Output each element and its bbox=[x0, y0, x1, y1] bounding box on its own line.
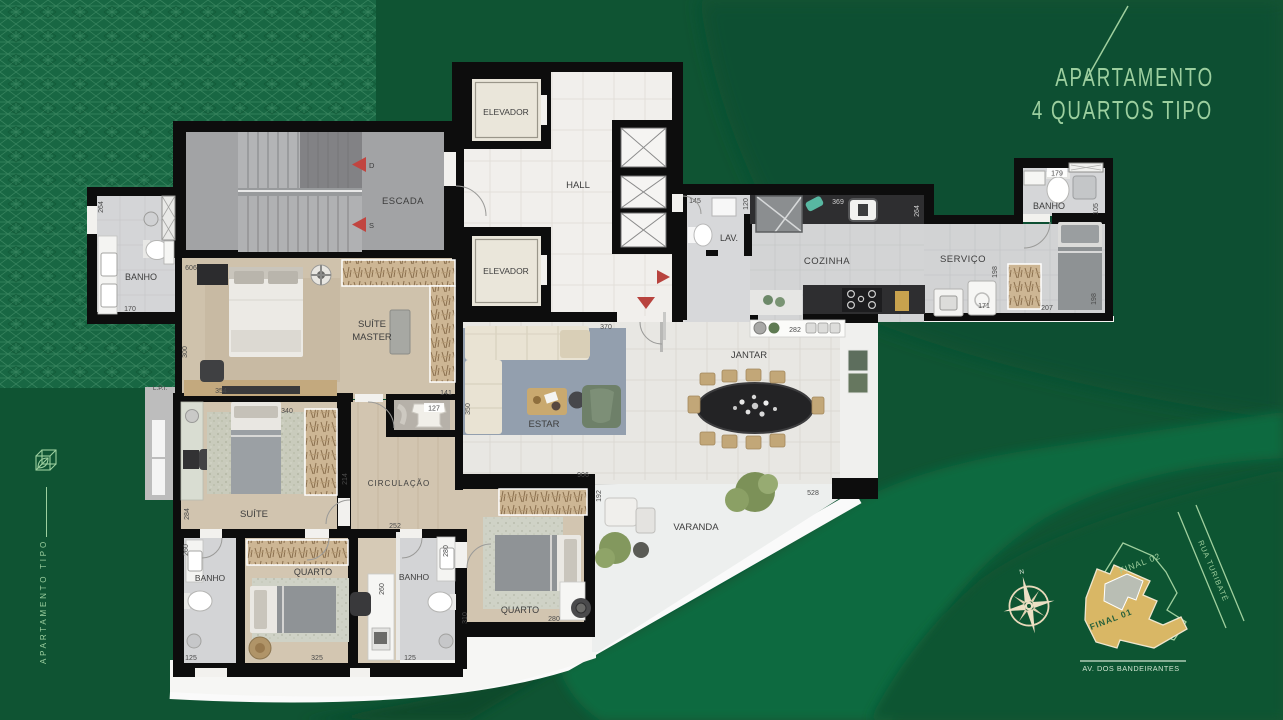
svg-text:105: 105 bbox=[1093, 203, 1100, 215]
svg-text:APARTAMENTO: APARTAMENTO bbox=[1055, 62, 1214, 92]
svg-text:280: 280 bbox=[548, 616, 560, 623]
svg-text:300: 300 bbox=[182, 346, 189, 358]
svg-text:BANHO: BANHO bbox=[125, 272, 157, 282]
svg-text:COZINHA: COZINHA bbox=[804, 256, 850, 267]
svg-text:528: 528 bbox=[807, 490, 819, 497]
svg-text:VARANDA: VARANDA bbox=[673, 522, 719, 533]
svg-text:LAV.: LAV. bbox=[720, 233, 738, 243]
svg-text:ELEVADOR: ELEVADOR bbox=[483, 107, 529, 117]
svg-text:D: D bbox=[369, 161, 375, 170]
svg-text:284: 284 bbox=[184, 508, 191, 520]
svg-text:370: 370 bbox=[600, 324, 612, 331]
svg-text:179: 179 bbox=[1051, 171, 1063, 178]
svg-text:198: 198 bbox=[992, 266, 999, 278]
svg-text:4 QUARTOS TIPO: 4 QUARTOS TIPO bbox=[1032, 95, 1213, 125]
svg-text:145: 145 bbox=[689, 198, 701, 205]
svg-text:APARTAMENTO TIPO: APARTAMENTO TIPO bbox=[39, 539, 48, 664]
svg-text:AV. DOS BANDEIRANTES: AV. DOS BANDEIRANTES bbox=[1082, 664, 1179, 673]
svg-text:ESTAR: ESTAR bbox=[529, 419, 560, 430]
svg-text:JANTAR: JANTAR bbox=[731, 350, 767, 361]
svg-text:BANHO: BANHO bbox=[399, 572, 430, 582]
svg-text:350: 350 bbox=[465, 403, 472, 415]
svg-text:369: 369 bbox=[832, 199, 844, 206]
svg-text:171: 171 bbox=[978, 303, 990, 310]
svg-text:282: 282 bbox=[789, 327, 801, 334]
svg-text:354: 354 bbox=[215, 388, 227, 395]
svg-text:214: 214 bbox=[342, 473, 349, 485]
svg-text:CIRCULAÇÃO: CIRCULAÇÃO bbox=[368, 479, 430, 488]
svg-text:SUÍTE: SUÍTE bbox=[240, 509, 268, 520]
svg-text:HALL: HALL bbox=[566, 180, 590, 191]
svg-text:606: 606 bbox=[185, 265, 197, 272]
svg-text:ELEVADOR: ELEVADOR bbox=[483, 266, 529, 276]
svg-text:QUARTO: QUARTO bbox=[294, 567, 332, 577]
svg-text:141: 141 bbox=[440, 390, 452, 397]
svg-text:BANHO: BANHO bbox=[195, 573, 226, 583]
svg-text:906: 906 bbox=[577, 472, 589, 479]
svg-text:198: 198 bbox=[1091, 293, 1098, 305]
svg-text:207: 207 bbox=[1041, 305, 1053, 312]
svg-text:SERVIÇO: SERVIÇO bbox=[940, 254, 986, 265]
svg-text:SUÍTE: SUÍTE bbox=[358, 319, 386, 330]
svg-text:MASTER: MASTER bbox=[352, 332, 392, 343]
svg-text:260: 260 bbox=[183, 544, 190, 556]
svg-text:264: 264 bbox=[98, 201, 105, 213]
svg-text:170: 170 bbox=[124, 306, 136, 313]
svg-text:QUARTO: QUARTO bbox=[501, 605, 539, 615]
svg-text:BANHO: BANHO bbox=[1033, 201, 1065, 211]
svg-text:280: 280 bbox=[443, 545, 450, 557]
svg-text:340: 340 bbox=[281, 408, 293, 415]
svg-text:ESCADA: ESCADA bbox=[382, 196, 424, 207]
svg-text:252: 252 bbox=[389, 523, 401, 530]
svg-text:125: 125 bbox=[404, 655, 416, 662]
svg-text:310: 310 bbox=[462, 612, 469, 624]
svg-text:192: 192 bbox=[596, 490, 603, 502]
svg-text:260: 260 bbox=[379, 583, 386, 595]
svg-text:325: 325 bbox=[311, 655, 323, 662]
svg-text:264: 264 bbox=[914, 205, 921, 217]
svg-text:127: 127 bbox=[428, 406, 440, 413]
svg-text:125: 125 bbox=[185, 655, 197, 662]
svg-text:120: 120 bbox=[743, 198, 750, 210]
svg-text:L.P.I.: L.P.I. bbox=[153, 385, 168, 392]
svg-text:S: S bbox=[369, 221, 374, 230]
